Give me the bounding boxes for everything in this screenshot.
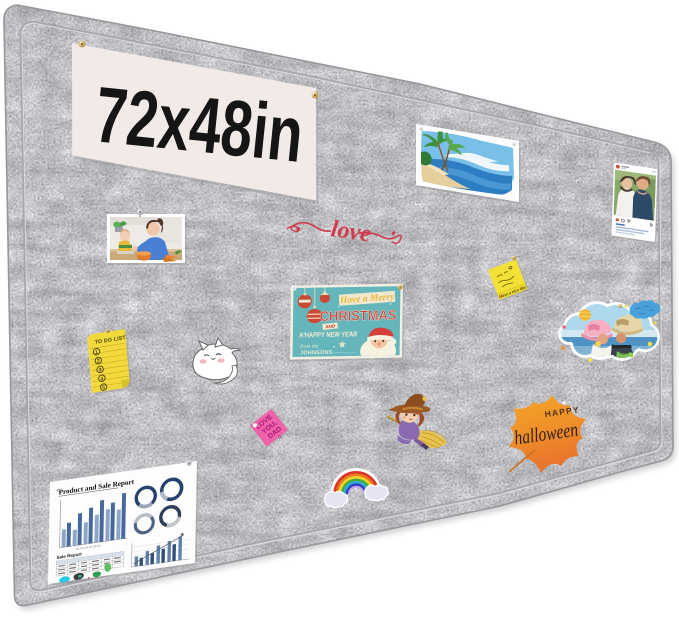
svg-text:from the: from the — [300, 343, 319, 350]
svg-text:JOHNSONS: JOHNSONS — [300, 350, 333, 357]
svg-text:A HAPPY NEW YEAR: A HAPPY NEW YEAR — [299, 331, 357, 339]
svg-text:CHRISTMAS: CHRISTMAS — [319, 307, 396, 324]
svg-text:love: love — [329, 216, 373, 247]
